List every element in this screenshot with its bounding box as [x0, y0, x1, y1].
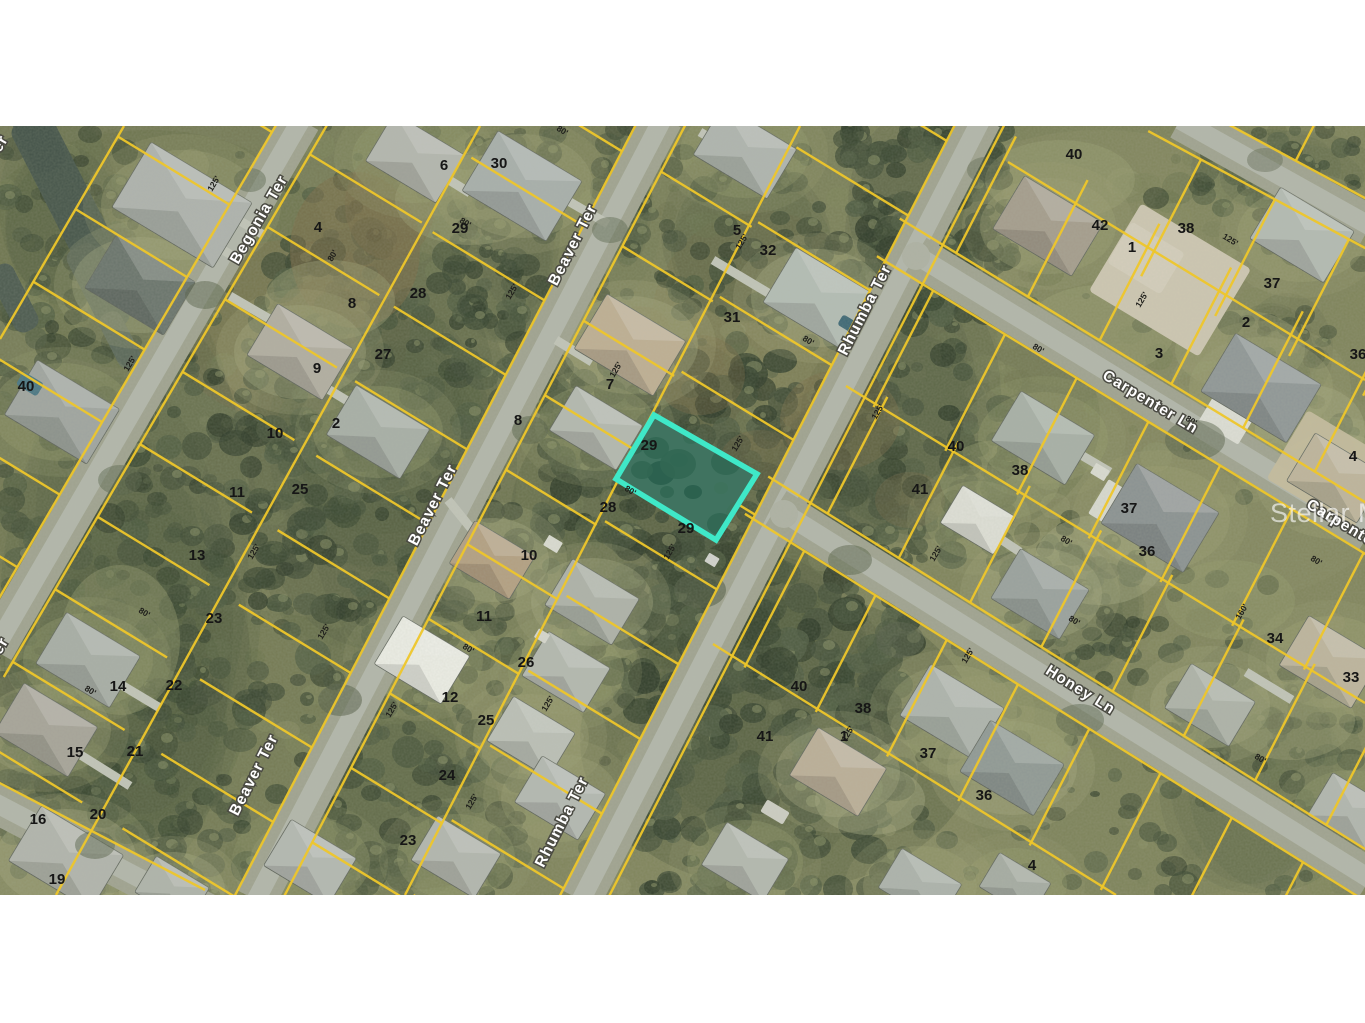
svg-text:34: 34 — [1267, 630, 1284, 647]
svg-text:38: 38 — [1012, 462, 1029, 479]
svg-text:2: 2 — [332, 415, 340, 432]
svg-text:11: 11 — [476, 608, 492, 625]
svg-text:24: 24 — [439, 767, 456, 784]
svg-text:14: 14 — [110, 678, 127, 695]
svg-text:36: 36 — [1350, 346, 1365, 363]
svg-text:40: 40 — [791, 678, 808, 695]
svg-text:20: 20 — [90, 806, 107, 823]
svg-text:33: 33 — [1343, 669, 1360, 686]
svg-text:28: 28 — [410, 285, 427, 302]
svg-text:15: 15 — [67, 744, 84, 761]
svg-text:7: 7 — [606, 376, 614, 393]
svg-text:19: 19 — [49, 871, 66, 888]
svg-text:29: 29 — [678, 520, 695, 537]
svg-text:23: 23 — [400, 832, 417, 849]
svg-text:21: 21 — [127, 743, 144, 760]
svg-text:41: 41 — [757, 728, 774, 745]
svg-text:38: 38 — [855, 700, 872, 717]
svg-text:42: 42 — [1092, 217, 1109, 234]
svg-text:25: 25 — [292, 481, 309, 498]
svg-text:11: 11 — [229, 484, 245, 501]
svg-text:Stellar MLS: Stellar MLS — [1270, 498, 1365, 528]
svg-text:29: 29 — [641, 437, 658, 454]
svg-text:13: 13 — [189, 547, 206, 564]
svg-text:40: 40 — [948, 438, 965, 455]
svg-text:37: 37 — [920, 745, 937, 762]
svg-text:28: 28 — [600, 499, 617, 516]
svg-text:12: 12 — [442, 689, 459, 706]
svg-text:1: 1 — [1128, 239, 1136, 256]
svg-text:10: 10 — [521, 547, 538, 564]
svg-text:31: 31 — [724, 309, 741, 326]
svg-text:29: 29 — [452, 220, 469, 237]
svg-text:27: 27 — [375, 346, 392, 363]
svg-text:41: 41 — [912, 481, 929, 498]
svg-text:1: 1 — [840, 728, 848, 745]
svg-text:10: 10 — [267, 425, 284, 442]
svg-text:26: 26 — [518, 654, 535, 671]
svg-text:3: 3 — [1155, 345, 1163, 362]
svg-text:37: 37 — [1264, 275, 1281, 292]
svg-text:4: 4 — [1349, 448, 1358, 465]
svg-text:2: 2 — [1242, 314, 1250, 331]
svg-text:36: 36 — [1139, 543, 1156, 560]
svg-text:40: 40 — [18, 378, 35, 395]
svg-text:30: 30 — [491, 155, 508, 172]
svg-text:32: 32 — [760, 242, 777, 259]
svg-text:16: 16 — [30, 811, 47, 828]
svg-text:38: 38 — [1178, 220, 1195, 237]
svg-text:40: 40 — [1066, 146, 1083, 163]
svg-text:23: 23 — [206, 610, 223, 627]
svg-text:9: 9 — [313, 360, 321, 377]
svg-text:22: 22 — [166, 677, 183, 694]
svg-text:36: 36 — [976, 787, 993, 804]
svg-text:6: 6 — [440, 157, 448, 174]
svg-text:37: 37 — [1121, 500, 1138, 517]
svg-text:4: 4 — [314, 219, 323, 236]
svg-text:8: 8 — [514, 412, 522, 429]
svg-text:8: 8 — [348, 295, 356, 312]
svg-text:4: 4 — [1028, 857, 1037, 874]
svg-text:25: 25 — [478, 712, 495, 729]
svg-text:5: 5 — [733, 222, 741, 239]
